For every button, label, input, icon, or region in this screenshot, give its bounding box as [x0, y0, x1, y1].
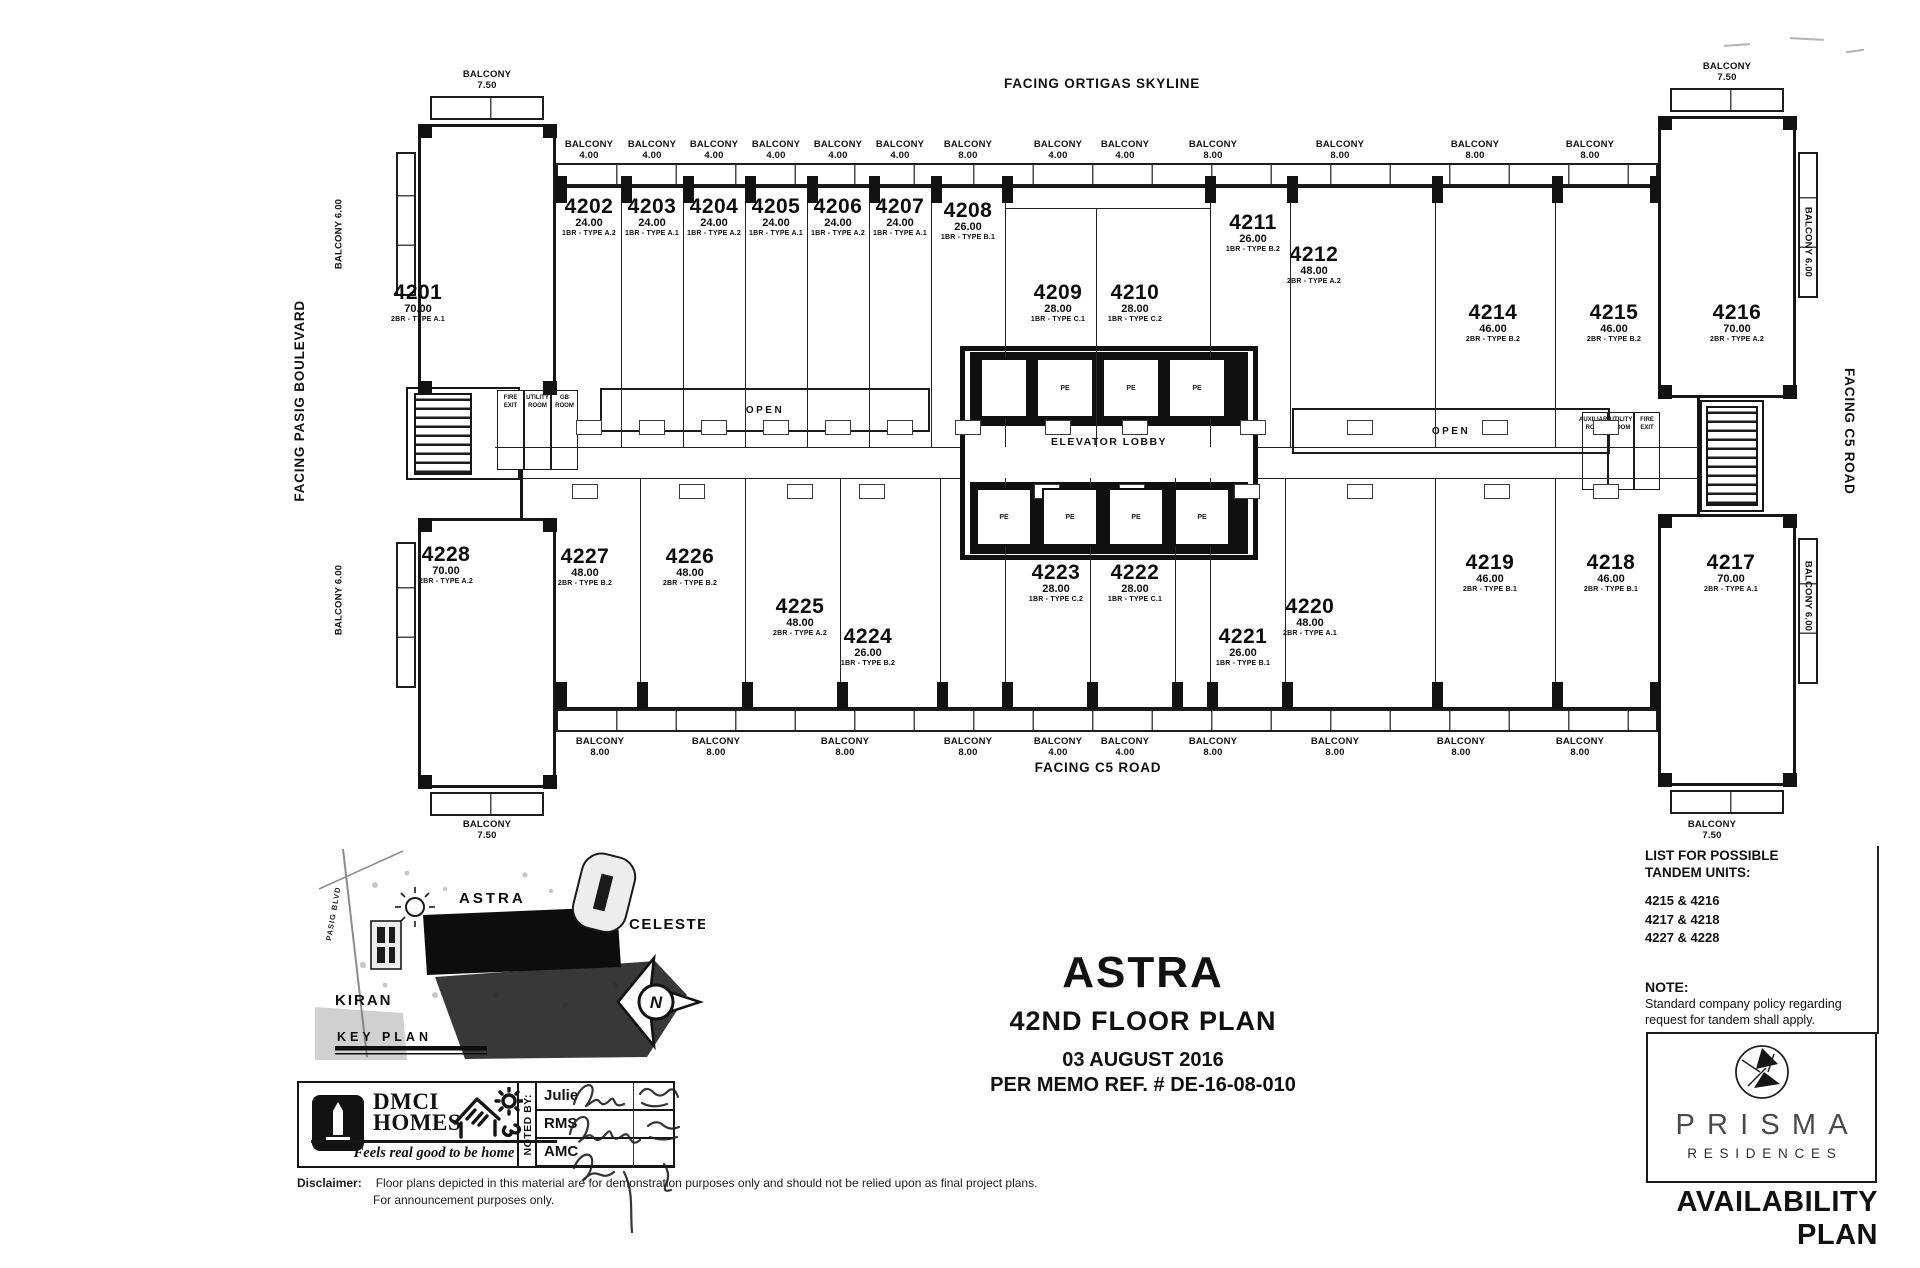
bath-fixture	[1593, 484, 1619, 499]
column	[742, 682, 753, 709]
unit-area: 70.00	[352, 304, 484, 316]
unit-label-4201: 420170.002BR - TYPE A.1	[352, 282, 484, 323]
unit-label-4212: 421248.002BR - TYPE A.2	[1248, 244, 1380, 285]
unit-number: 4225	[734, 596, 866, 618]
balcony-label: BALCONY 6.00	[1802, 561, 1813, 631]
unit-type: 1BR - TYPE B.1	[902, 234, 1034, 241]
balcony-label: BALCONY4.00	[1034, 140, 1082, 161]
column	[1002, 176, 1013, 203]
bath-fixture	[576, 420, 602, 435]
key-plan-amenity-buildings	[371, 921, 401, 969]
unit-number: 4220	[1244, 596, 1376, 618]
bath-fixture	[1347, 484, 1373, 499]
column	[637, 682, 648, 709]
unit-type: 2BR - TYPE B.2	[1548, 336, 1680, 343]
unit-type: 1BR - TYPE C.2	[990, 596, 1122, 603]
dmci-word-2: HOMES	[373, 1112, 461, 1133]
column	[1658, 514, 1672, 528]
fire-stairs-right	[1706, 406, 1758, 506]
balcony-label: BALCONY8.00	[1566, 140, 1614, 161]
floor-plan-sheet: FACING ORTIGAS SKYLINE FACING C5 ROAD FA…	[0, 0, 1920, 1268]
pen-mark	[1724, 43, 1750, 47]
unit-partition	[931, 188, 932, 447]
noted-by-label: NOTED BY:	[522, 1094, 534, 1155]
unit-area: 26.00	[1177, 648, 1309, 660]
unit-number: 4201	[352, 282, 484, 304]
column	[1432, 176, 1443, 203]
unit-area: 26.00	[902, 222, 1034, 234]
column	[1783, 773, 1797, 787]
elevator-car-label: PE	[1060, 385, 1069, 392]
dmci-logo-icon	[312, 1095, 364, 1151]
room-label: UTILITY ROOM	[525, 395, 550, 410]
column	[869, 176, 880, 203]
unit-number: 4208	[902, 200, 1034, 222]
unit-partition	[869, 188, 870, 447]
elevator-car: PE	[1174, 488, 1230, 546]
corridor-line	[1258, 478, 1700, 479]
balcony-label: BALCONY 6.00	[335, 565, 346, 635]
bath-fixture	[1122, 420, 1148, 435]
unit-label-4210: 421028.001BR - TYPE C.2	[1069, 282, 1201, 323]
unit-area: 46.00	[1424, 574, 1556, 586]
key-plan-astra-label: ASTRA	[459, 890, 526, 907]
corridor-line	[495, 447, 960, 448]
bath-fixture	[887, 420, 913, 435]
bath-fixture	[679, 484, 705, 499]
open-label: OPEN	[746, 405, 784, 416]
tandem-pair: 4227 & 4228	[1645, 930, 1870, 945]
availability-plan-title: AVAILABILITY PLAN	[1600, 1186, 1878, 1252]
column	[937, 682, 948, 709]
room-label: FIRE EXIT	[1635, 417, 1659, 432]
column	[543, 124, 557, 138]
tower-top-right	[1658, 116, 1796, 398]
pen-mark	[1846, 49, 1864, 53]
unit-label-4228: 422870.002BR - TYPE A.2	[380, 544, 512, 585]
room-gb-left: GB ROOM	[551, 390, 578, 470]
bath-fixture	[1484, 484, 1510, 499]
balcony-strip-tower	[430, 96, 544, 120]
dmci-wordmark: DMCI HOMES	[373, 1091, 461, 1133]
corridor-line	[1258, 447, 1700, 448]
facing-label-bottom: FACING C5 ROAD	[1035, 760, 1162, 775]
balcony-text: 4.00	[1101, 151, 1149, 162]
balcony-text: 8.00	[1189, 748, 1237, 759]
column	[745, 176, 756, 203]
balcony-text: 4.00	[1034, 151, 1082, 162]
column	[418, 518, 432, 532]
unit-partition	[840, 478, 841, 708]
column	[1552, 176, 1563, 203]
column	[1205, 176, 1216, 203]
unit-partition	[745, 188, 746, 447]
balcony-text: 8.00	[692, 748, 740, 759]
balcony-text: 8.00	[1451, 151, 1499, 162]
unit-partition	[745, 478, 746, 708]
title-block: ASTRA 42ND FLOOR PLAN 03 AUGUST 2016 PER…	[960, 948, 1326, 1097]
balcony-text: 8.00	[1311, 748, 1359, 759]
column	[418, 381, 432, 395]
balcony-label: BALCONY7.50	[463, 820, 511, 841]
column	[807, 176, 818, 203]
balcony-label: BALCONY4.00	[876, 140, 924, 161]
balcony-label: BALCONY7.50	[1688, 820, 1736, 841]
tandem-pair: 4215 & 4216	[1645, 893, 1870, 908]
balcony-text: 4.00	[628, 151, 676, 162]
unit-area: 48.00	[519, 568, 651, 580]
prisma-logo-block: PRISMA RESIDENCES	[1646, 1032, 1877, 1183]
column	[418, 775, 432, 789]
column	[1650, 682, 1661, 709]
balcony-text: 8.00	[1316, 151, 1364, 162]
column	[1087, 682, 1098, 709]
tandem-heading-line2: TANDEM UNITS:	[1645, 865, 1870, 882]
unit-partition	[1285, 478, 1286, 708]
column	[543, 775, 557, 789]
elevator-car: PE	[1042, 488, 1098, 546]
column	[418, 124, 432, 138]
elevator-car-label: PE	[1197, 514, 1206, 521]
column	[1658, 773, 1672, 787]
unit-label-4225: 422548.002BR - TYPE A.2	[734, 596, 866, 637]
column	[1783, 385, 1797, 399]
balcony-label: BALCONY8.00	[944, 737, 992, 758]
unit-number: 4214	[1427, 302, 1559, 324]
signature-julie	[574, 1085, 624, 1106]
elevator-car: PE	[1102, 358, 1160, 418]
unit-type: 1BR - TYPE B.1	[1177, 660, 1309, 667]
key-plan-kiran-label: KIRAN	[335, 992, 393, 1009]
unit-area: 28.00	[1069, 304, 1201, 316]
open-label: OPEN	[1432, 426, 1470, 437]
note-line: request for tandem shall apply.	[1645, 1013, 1870, 1027]
bath-fixture	[787, 484, 813, 499]
balcony-label: BALCONY8.00	[1189, 737, 1237, 758]
column	[1432, 682, 1443, 709]
note-label: NOTE:	[1645, 979, 1870, 995]
unit-label-4216: 421670.002BR - TYPE A.2	[1671, 302, 1803, 343]
balcony-text: 7.50	[1703, 73, 1751, 84]
unit-label-4221: 422126.001BR - TYPE B.1	[1177, 626, 1309, 667]
key-plan-underline	[335, 1053, 487, 1055]
corridor-line	[1005, 208, 1210, 209]
column	[931, 176, 942, 203]
bath-fixture	[701, 420, 727, 435]
elevator-car: PE	[1108, 488, 1164, 546]
balcony-text: 4.00	[876, 151, 924, 162]
balcony-label: BALCONY4.00	[690, 140, 738, 161]
unit-type: 2BR - TYPE B.2	[519, 580, 651, 587]
unit-number: 4223	[990, 562, 1122, 584]
balcony-label: BALCONY8.00	[821, 737, 869, 758]
balcony-strip-bottom	[556, 709, 1658, 732]
balcony-text: 4.00	[1034, 748, 1082, 759]
balcony-label: BALCONY4.00	[628, 140, 676, 161]
unit-area: 46.00	[1545, 574, 1677, 586]
unit-area: 26.00	[802, 648, 934, 660]
unit-label-4227: 422748.002BR - TYPE B.2	[519, 546, 651, 587]
unit-number: 4210	[1069, 282, 1201, 304]
plan-date: 03 AUGUST 2016	[960, 1049, 1326, 1072]
signatures	[560, 1076, 700, 1236]
key-plan-title: KEY PLAN	[337, 1030, 432, 1044]
column	[1783, 116, 1797, 130]
disclaimer-line1: Floor plans depicted in this material ar…	[376, 1176, 1038, 1190]
key-plan-road	[319, 851, 403, 889]
unit-type: 2BR - TYPE A.1	[1665, 586, 1797, 593]
annotation-1	[640, 1089, 678, 1106]
annotation-2	[648, 1122, 679, 1139]
column	[543, 518, 557, 532]
balcony-label: BALCONY8.00	[576, 737, 624, 758]
unit-number: 4218	[1545, 552, 1677, 574]
unit-type: 2BR - TYPE A.2	[380, 578, 512, 585]
unit-partition	[1290, 188, 1291, 447]
elevator-car: PE	[976, 488, 1032, 546]
balcony-label: BALCONY4.00	[1101, 737, 1149, 758]
column	[1658, 116, 1672, 130]
tower-top-left	[418, 124, 556, 394]
room-fire-exit-left: FIRE EXIT	[497, 390, 524, 470]
balcony-label: BALCONY8.00	[1437, 737, 1485, 758]
unit-partition	[1435, 478, 1436, 708]
balcony-strip-tower	[1670, 790, 1784, 814]
balcony-text: 8.00	[1556, 748, 1604, 759]
balcony-label: BALCONY8.00	[692, 737, 740, 758]
column	[1172, 682, 1183, 709]
bath-fixture	[859, 484, 885, 499]
elevator-car: PE	[1168, 358, 1226, 418]
column	[1783, 514, 1797, 528]
balcony-label: BALCONY4.00	[1101, 140, 1149, 161]
bath-fixture	[1593, 420, 1619, 435]
balcony-text: 7.50	[1688, 831, 1736, 842]
noted-by-label-cell: NOTED BY:	[517, 1083, 537, 1167]
bath-fixture	[825, 420, 851, 435]
balcony-label: BALCONY8.00	[1556, 737, 1604, 758]
disclaimer-label: Disclaimer:	[297, 1176, 362, 1190]
unit-type: 2BR - TYPE A.2	[1671, 336, 1803, 343]
key-plan-sun-icon	[406, 898, 424, 916]
unit-number: 4217	[1665, 552, 1797, 574]
pen-mark	[1790, 37, 1824, 41]
balcony-strip-tower	[1670, 88, 1784, 112]
unit-label-4217: 421770.002BR - TYPE A.1	[1665, 552, 1797, 593]
north-label: N	[650, 993, 663, 1012]
balcony-strip-side	[396, 152, 416, 296]
north-arrow: N	[612, 942, 704, 1050]
note-line: Standard company policy regarding	[1645, 997, 1870, 1011]
unit-area: 48.00	[734, 618, 866, 630]
bath-fixture	[1045, 420, 1071, 435]
unit-type: 1BR - TYPE B.2	[802, 660, 934, 667]
unit-type: 2BR - TYPE B.2	[1427, 336, 1559, 343]
tandem-pair: 4217 & 4218	[1645, 912, 1870, 927]
room-label: FIRE EXIT	[498, 395, 523, 410]
unit-label-4223: 422328.001BR - TYPE C.2	[990, 562, 1122, 603]
elevator-car: PE	[1036, 358, 1094, 418]
unit-area: 70.00	[1665, 574, 1797, 586]
unit-area: 46.00	[1427, 324, 1559, 336]
balcony-strip-tower	[430, 792, 544, 816]
unit-type: 2BR - TYPE A.2	[734, 630, 866, 637]
balcony-text: 4.00	[1101, 748, 1149, 759]
balcony-label: BALCONY8.00	[1311, 737, 1359, 758]
unit-number: 4227	[519, 546, 651, 568]
unit-number: 4215	[1548, 302, 1680, 324]
tandem-heading-line1: LIST FOR POSSIBLE	[1645, 848, 1870, 865]
unit-number: 4211	[1187, 212, 1319, 234]
unit-label-4214: 421446.002BR - TYPE B.2	[1427, 302, 1559, 343]
column	[683, 176, 694, 203]
bath-fixture	[1482, 420, 1508, 435]
bath-fixture	[1234, 484, 1260, 499]
balcony-text: 8.00	[1566, 151, 1614, 162]
unit-label-4208: 420826.001BR - TYPE B.1	[902, 200, 1034, 241]
elevator-lobby-label: ELEVATOR LOBBY	[1051, 436, 1167, 448]
unit-partition	[683, 188, 684, 447]
unit-partition	[807, 188, 808, 447]
balcony-text: 7.50	[463, 831, 511, 842]
balcony-text: 8.00	[944, 748, 992, 759]
prisma-wordmark: PRISMA	[1660, 1109, 1875, 1142]
unit-number: 4216	[1671, 302, 1803, 324]
key-plan-celeste-label: CELESTE	[629, 916, 705, 933]
dmci-house-doodle	[451, 1087, 523, 1145]
facing-label-top: FACING ORTIGAS SKYLINE	[1004, 76, 1200, 91]
unit-number: 4219	[1424, 552, 1556, 574]
column	[1207, 682, 1218, 709]
balcony-text: 8.00	[1437, 748, 1485, 759]
balcony-label: BALCONY8.00	[944, 140, 992, 161]
unit-area: 48.00	[1248, 266, 1380, 278]
balcony-text: 4.00	[752, 151, 800, 162]
unit-type: 2BR - TYPE B.1	[1424, 586, 1556, 593]
unit-type: 2BR - TYPE B.1	[1545, 586, 1677, 593]
balcony-label: BALCONY4.00	[1034, 737, 1082, 758]
unit-label-4219: 421946.002BR - TYPE B.1	[1424, 552, 1556, 593]
elevator-car-label: PE	[999, 514, 1008, 521]
dmci-word-1: DMCI	[373, 1091, 461, 1112]
balcony-label: BALCONY 6.00	[1802, 207, 1813, 277]
unit-type: 2BR - TYPE A.1	[352, 316, 484, 323]
room-utility-left: UTILITY ROOM	[524, 390, 551, 470]
project-name: ASTRA	[960, 948, 1326, 998]
unit-partition	[940, 478, 941, 708]
disclaimer-line2: For announcement purposes only.	[373, 1193, 1037, 1207]
elevator-car-label: PE	[1192, 385, 1201, 392]
unit-number: 4212	[1248, 244, 1380, 266]
elevator-car-label: PE	[1126, 385, 1135, 392]
balcony-label: BALCONY7.50	[463, 70, 511, 91]
elevator-car-label: PE	[1131, 514, 1140, 521]
column	[621, 176, 632, 203]
unit-area: 46.00	[1548, 324, 1680, 336]
facing-label-left: FACING PASIG BOULEVARD	[292, 300, 307, 502]
disclaimer: Disclaimer:Floor plans depicted in this …	[297, 1176, 1037, 1207]
balcony-text: 8.00	[821, 748, 869, 759]
unit-area: 70.00	[1671, 324, 1803, 336]
signature-rms	[570, 1117, 640, 1143]
unit-partition	[1096, 208, 1097, 447]
prisma-sphere-icon	[1732, 1042, 1792, 1102]
column	[1282, 682, 1293, 709]
balcony-label: BALCONY4.00	[814, 140, 862, 161]
balcony-text: 7.50	[463, 81, 511, 92]
column	[1002, 682, 1013, 709]
elevator-car-label: PE	[1065, 514, 1074, 521]
column	[1658, 385, 1672, 399]
balcony-label: BALCONY4.00	[752, 140, 800, 161]
unit-partition	[640, 478, 641, 708]
unit-label-4218: 421846.002BR - TYPE B.1	[1545, 552, 1677, 593]
balcony-text: 4.00	[690, 151, 738, 162]
balcony-label: BALCONY8.00	[1316, 140, 1364, 161]
unit-number: 4228	[380, 544, 512, 566]
residences-wordmark: RESIDENCES	[1655, 1146, 1875, 1161]
fire-stairs-left	[414, 393, 472, 475]
balcony-label: BALCONY 6.00	[335, 199, 346, 269]
balcony-label: BALCONY8.00	[1451, 140, 1499, 161]
key-plan-underline	[335, 1046, 487, 1051]
unit-type: 2BR - TYPE A.2	[1248, 278, 1380, 285]
column	[1552, 682, 1563, 709]
bath-fixture	[1347, 420, 1373, 435]
unit-number: 4221	[1177, 626, 1309, 648]
column	[556, 682, 567, 709]
column	[1650, 176, 1661, 203]
unit-type: 1BR - TYPE C.2	[1069, 316, 1201, 323]
column	[543, 381, 557, 395]
facing-label-right: FACING C5 ROAD	[1842, 368, 1857, 495]
unit-partition	[621, 188, 622, 447]
bath-fixture	[955, 420, 981, 435]
corridor-line	[495, 478, 960, 479]
balcony-text: 8.00	[576, 748, 624, 759]
unit-area: 28.00	[990, 584, 1122, 596]
elevator-machine-room	[980, 358, 1028, 418]
tandem-heading: LIST FOR POSSIBLE TANDEM UNITS:	[1645, 848, 1870, 882]
tandem-list: LIST FOR POSSIBLE TANDEM UNITS: 4215 & 4…	[1645, 848, 1870, 1027]
balcony-strip-top	[556, 163, 1658, 186]
unit-partition	[1435, 188, 1436, 447]
bath-fixture	[572, 484, 598, 499]
balcony-text: 4.00	[814, 151, 862, 162]
bath-fixture	[763, 420, 789, 435]
room-label: GB ROOM	[552, 395, 577, 410]
column	[1287, 176, 1298, 203]
balcony-text: 8.00	[1189, 151, 1237, 162]
bath-fixture	[639, 420, 665, 435]
key-plan-road-label: PASIG BLVD	[324, 886, 342, 941]
balcony-label: BALCONY8.00	[1189, 140, 1237, 161]
balcony-text: 4.00	[565, 151, 613, 162]
column	[837, 682, 848, 709]
unit-label-4215: 421546.002BR - TYPE B.2	[1548, 302, 1680, 343]
bath-fixture	[1240, 420, 1266, 435]
floor-title: 42ND FLOOR PLAN	[960, 1006, 1326, 1037]
sheet-border-right	[1877, 846, 1879, 1034]
unit-partition	[1555, 188, 1556, 447]
unit-partition	[1555, 478, 1556, 708]
memo-ref: PER MEMO REF. # DE-16-08-010	[960, 1074, 1326, 1097]
balcony-label: BALCONY4.00	[565, 140, 613, 161]
balcony-label: BALCONY7.50	[1703, 62, 1751, 83]
unit-area: 70.00	[380, 566, 512, 578]
column	[556, 176, 567, 203]
balcony-text: 8.00	[944, 151, 992, 162]
